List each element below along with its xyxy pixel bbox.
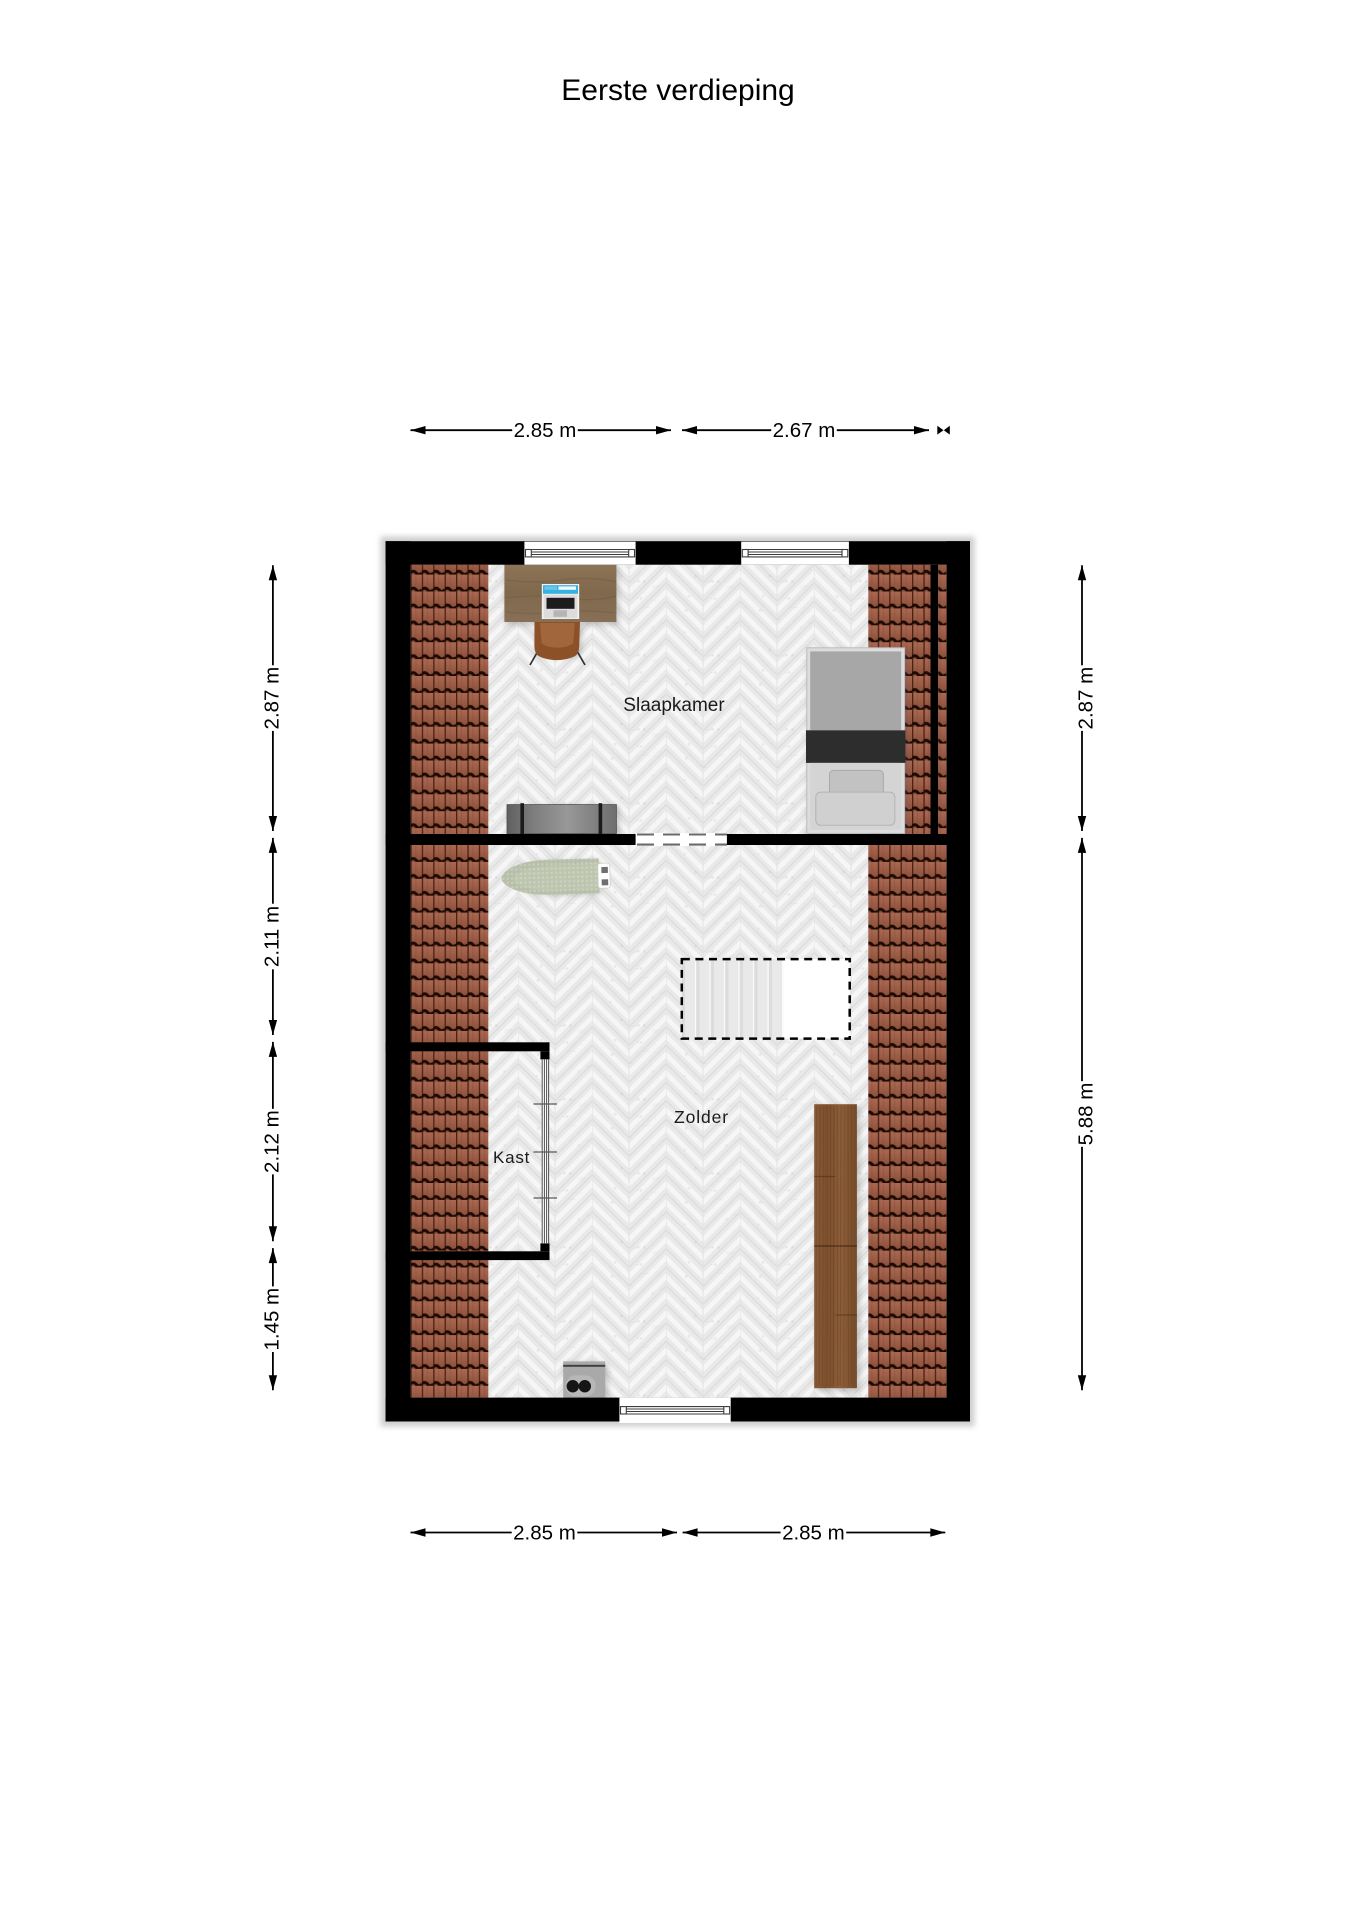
svg-text:2.85 m: 2.85 m: [513, 1522, 576, 1545]
svg-text:2.85 m: 2.85 m: [782, 1522, 845, 1545]
svg-text:2.87 m: 2.87 m: [1075, 667, 1098, 730]
svg-text:1.45 m: 1.45 m: [260, 1288, 283, 1351]
svg-text:Slaapkamer: Slaapkamer: [623, 695, 725, 716]
svg-text:Kast: Kast: [493, 1148, 530, 1167]
svg-text:2.87 m: 2.87 m: [260, 667, 283, 730]
svg-text:Zolder: Zolder: [674, 1107, 729, 1127]
svg-text:2.12 m: 2.12 m: [260, 1110, 283, 1173]
svg-text:2.67 m: 2.67 m: [773, 419, 836, 442]
svg-text:Eerste verdieping: Eerste verdieping: [561, 74, 794, 107]
svg-text:2.85 m: 2.85 m: [514, 419, 577, 442]
svg-text:2.11 m: 2.11 m: [260, 906, 283, 967]
svg-text:5.88 m: 5.88 m: [1075, 1083, 1098, 1146]
